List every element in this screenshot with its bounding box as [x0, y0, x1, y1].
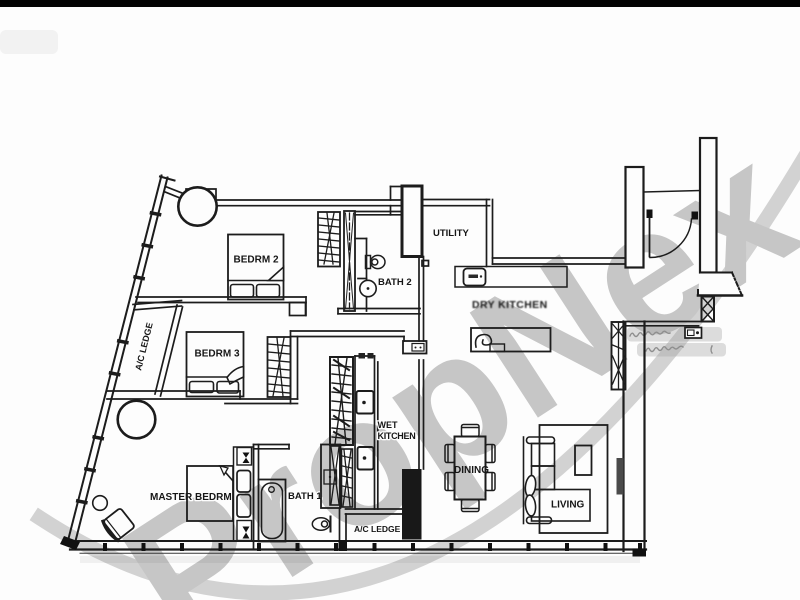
- svg-text:BEDRM 2: BEDRM 2: [234, 255, 279, 266]
- svg-text:BATH 2: BATH 2: [378, 277, 412, 288]
- svg-text:MASTER BEDRM: MASTER BEDRM: [150, 492, 232, 503]
- svg-text:LIVING: LIVING: [551, 500, 585, 511]
- svg-text:BEDRM 3: BEDRM 3: [195, 349, 240, 360]
- svg-text:A/C LEDGE: A/C LEDGE: [354, 524, 401, 534]
- svg-text:UTILITY: UTILITY: [433, 228, 470, 239]
- svg-text:DINING: DINING: [454, 465, 489, 476]
- svg-text:WET: WET: [378, 420, 398, 430]
- svg-text:KITCHEN: KITCHEN: [378, 431, 416, 441]
- svg-text:DRY KITCHEN: DRY KITCHEN: [472, 299, 548, 311]
- svg-text:BATH 1: BATH 1: [288, 491, 322, 502]
